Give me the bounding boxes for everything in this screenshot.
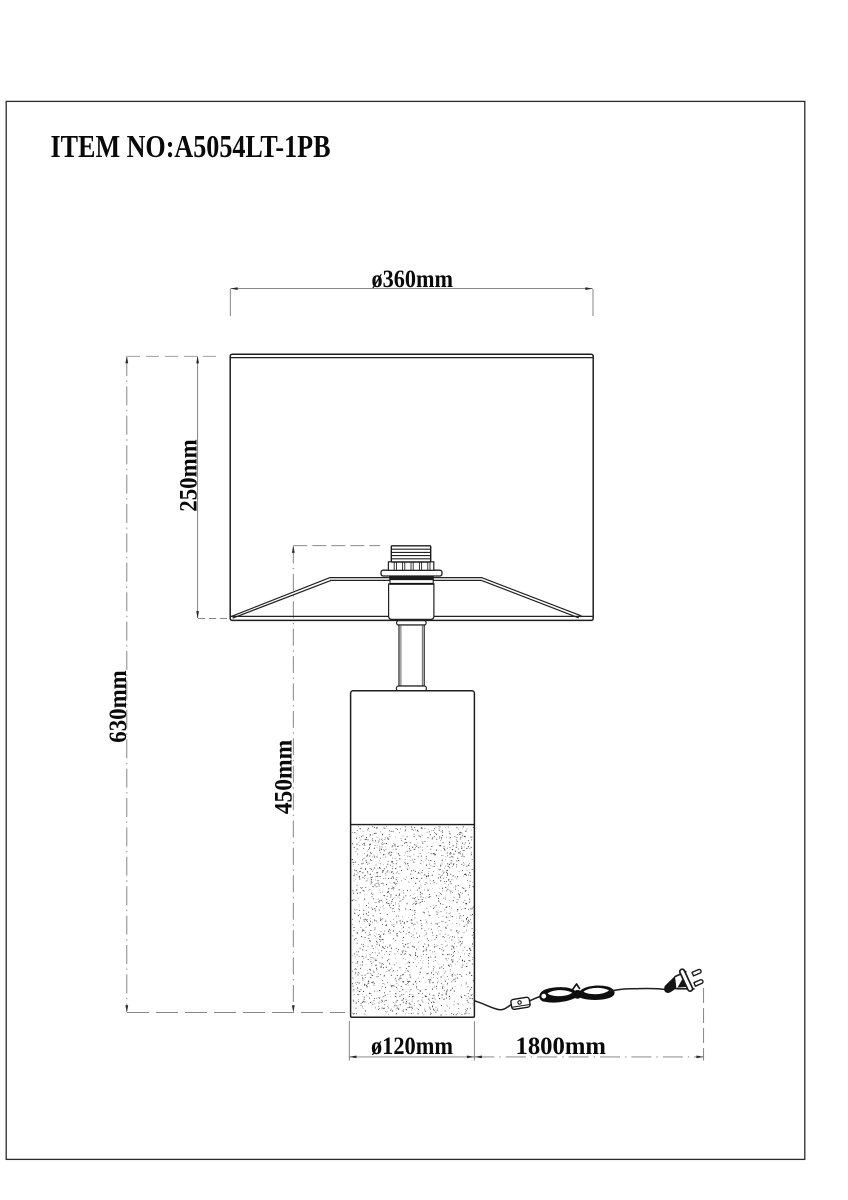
svg-text:1800mm: 1800mm	[516, 1031, 607, 1060]
svg-text:ø360mm: ø360mm	[372, 264, 454, 293]
svg-text:450mm: 450mm	[269, 740, 298, 815]
svg-text:630mm: 630mm	[103, 670, 132, 743]
svg-text:ITEM NO:A5054LT-1PB: ITEM NO:A5054LT-1PB	[51, 128, 331, 164]
svg-text:250mm: 250mm	[174, 439, 203, 512]
svg-text:ø120mm: ø120mm	[371, 1031, 453, 1060]
